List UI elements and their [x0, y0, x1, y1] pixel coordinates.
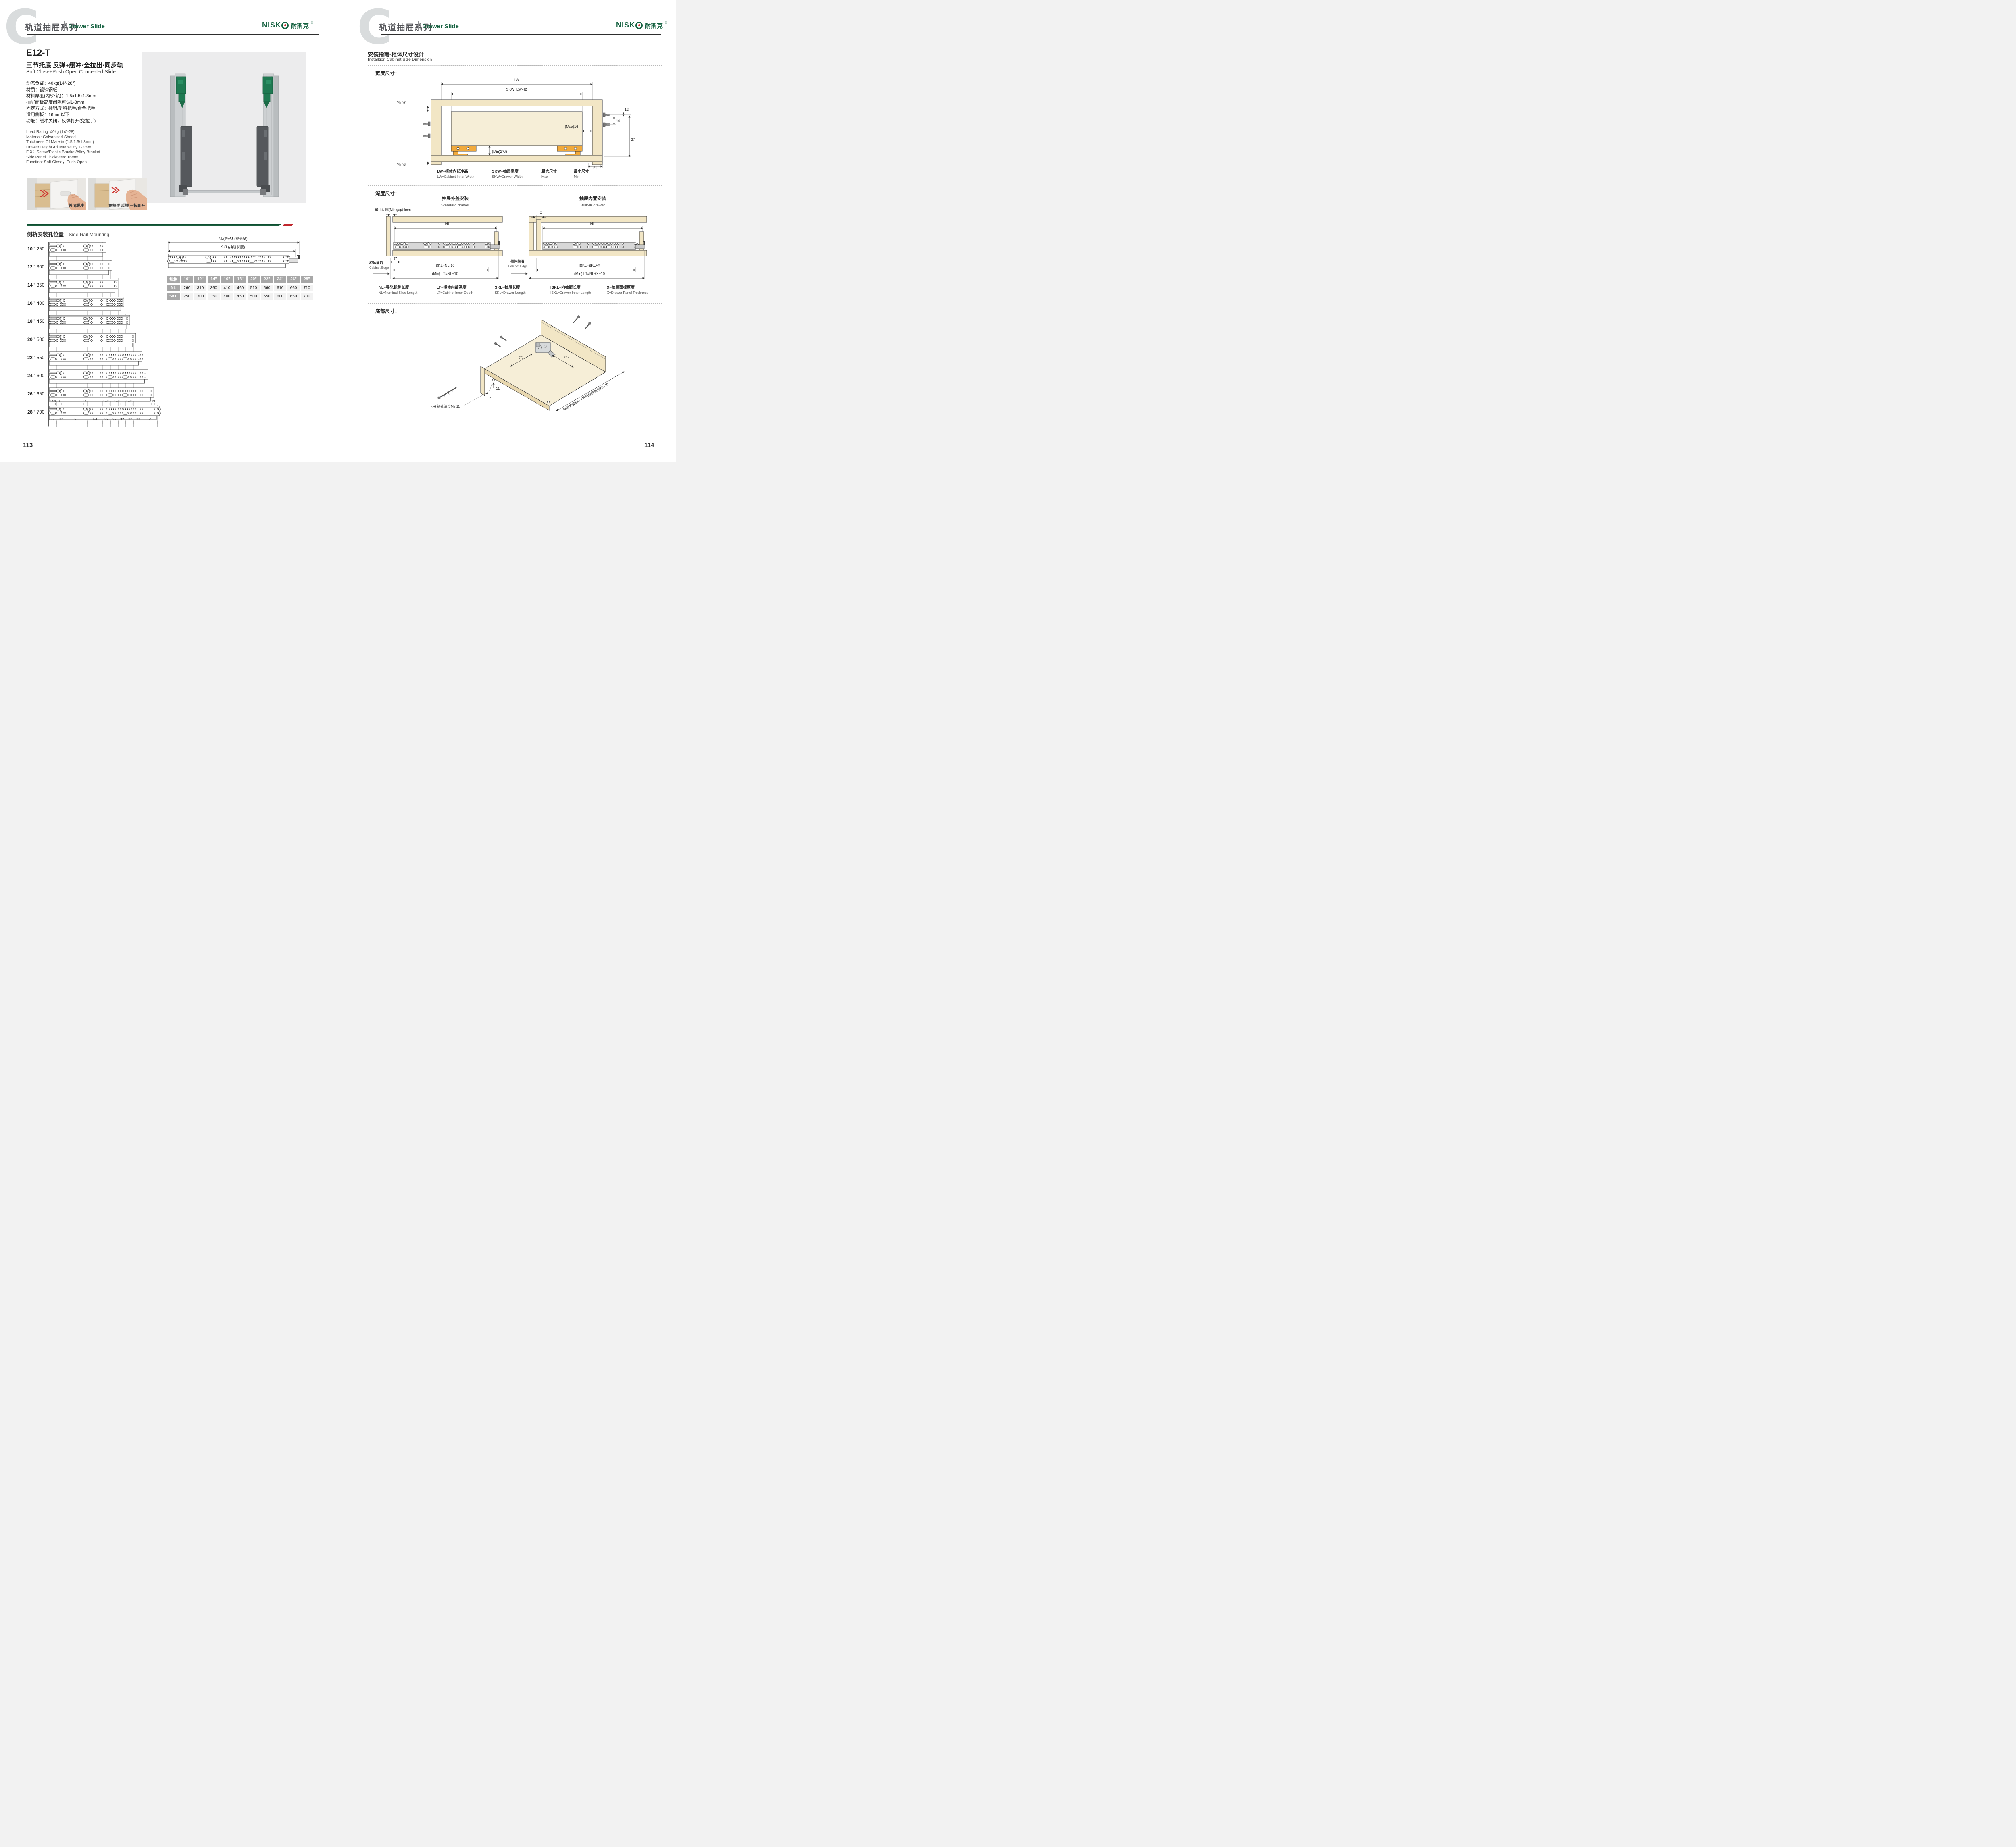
spec-line-en: Thickness Of Materia (1.5/1.5/1.8mm)	[26, 140, 100, 145]
table-value-cell: 360	[208, 285, 220, 291]
photo-soft-close: 关闭缓冲	[27, 178, 86, 210]
svg-text:Standard drawer: Standard drawer	[441, 203, 469, 208]
separator-red	[283, 224, 293, 226]
svg-text:7: 7	[489, 396, 491, 400]
rail-top-dim: 999	[50, 399, 56, 403]
svg-text:NL(导轨标称长度): NL(导轨标称长度)	[219, 236, 248, 241]
spec-line-cn: 适用侧板：16mm以下	[26, 112, 96, 119]
legend-item: LW=柜体内部净高LW=Cabinet Inner Width	[437, 168, 474, 179]
series-title-en: Drawer Slide	[422, 23, 459, 30]
rail-bottom-dim: 96	[74, 417, 78, 421]
catalog-spread: C 轨道抽屉系列 Drawer Slide NISK 耐斯克 ® E12-T 三…	[0, 0, 676, 462]
width-section: 宽度尺寸： LW SKW=LW-42 (Min)7 (Max)16	[368, 65, 662, 181]
photo-push-open: 免拉手 反弹 一按即开	[88, 178, 147, 210]
legend-item: LT=柜体内部深度LT=Cabinet Inner Depth	[437, 284, 473, 295]
rail-bottom-dim: 32	[104, 417, 108, 421]
rail-bottom-dim: 37	[50, 417, 54, 421]
rail-row-mm: 450	[37, 319, 44, 324]
rail-row-inch: 20"	[27, 337, 35, 342]
svg-text:85: 85	[564, 355, 569, 359]
spec-line-cn: 材料厚度(内/外轨)：1.5x1.5x1.8mm	[26, 93, 96, 100]
table-value-cell: 650	[287, 293, 300, 300]
brand-logo: NISK 耐斯克 ®	[616, 21, 667, 30]
table-value-cell: 510	[248, 285, 260, 291]
install-title-cn: 安装指南-柜体尺寸设计	[368, 50, 424, 58]
rail-drawing	[49, 388, 154, 401]
spec-line-en: Side Panel Thickness: 16mm	[26, 155, 100, 160]
table-value-cell: 300	[194, 293, 206, 300]
svg-text:柜体前沿: 柜体前沿	[510, 259, 525, 263]
rail-row-mm: 550	[37, 356, 44, 360]
svg-text:柜体前沿: 柜体前沿	[369, 261, 383, 265]
svg-text:LW: LW	[514, 78, 519, 82]
logo-o-icon	[635, 22, 643, 29]
rail-drawing	[49, 352, 143, 365]
legend-item: 最大尺寸Max	[541, 168, 557, 179]
rail-row-mm: 700	[37, 410, 44, 415]
separator-green	[27, 224, 281, 226]
svg-text:抽屉外盖安装: 抽屉外盖安装	[442, 196, 469, 201]
rail-drawing	[49, 297, 124, 311]
legend-item: NL=导轨标称长度NL=Nominal Slide Length	[379, 284, 418, 295]
rail-bottom-dim: 32	[59, 417, 63, 421]
rail-top-dim: 1499	[126, 399, 133, 403]
rail-row-inch: 14"	[27, 283, 35, 288]
spec-line-cn: 功能：缓冲关闭，反弹打开(免拉手)	[26, 118, 96, 125]
rail-drawing	[49, 333, 136, 347]
side-rail-title-en: Side Rail Mounting	[69, 232, 109, 237]
rail-bottom-dim: 64	[93, 417, 97, 421]
rail-row-mm: 600	[37, 374, 44, 379]
table-value-cell: 710	[301, 285, 313, 291]
table-value-cell: 700	[301, 293, 313, 300]
page-number-right: 114	[644, 442, 654, 449]
side-rail-title-cn: 侧轨安装孔位置	[27, 231, 64, 237]
rail-top-dim: 99	[84, 399, 87, 403]
width-label: 宽度尺寸：	[375, 70, 400, 77]
specs-cn: 动态负载：40kg(14"-28")材质：镀锌钢板材料厚度(内/外轨)：1.5x…	[26, 81, 96, 125]
svg-text:(Max)16: (Max)16	[565, 125, 578, 129]
legend-item: X=抽屉面板厚度X=Drawer Panel Thickness	[607, 284, 648, 295]
legend-item: SKL=抽屉长度SKL=Drawer Length	[495, 284, 526, 295]
table-value-cell: 460	[234, 285, 246, 291]
svg-text:(Min) LT=NL+10: (Min) LT=NL+10	[432, 272, 458, 276]
bottom-diagram: 75 85 11 7 Φ6 钻孔深度Min11 抽屉长度SKL=导轨标称长度NL…	[369, 314, 661, 422]
svg-text:ISKL=SKL+X: ISKL=SKL+X	[579, 264, 600, 268]
rail-bottom-dim: 32	[112, 417, 116, 421]
rail-row-inch: 16"	[27, 301, 35, 306]
rail-drawing	[49, 315, 130, 329]
rail-row-inch: 10"	[27, 247, 35, 252]
series-title-en: Drawer Slide	[68, 23, 105, 30]
svg-text:Cabinet Edge: Cabinet Edge	[369, 266, 389, 270]
svg-text:(Min)3: (Min)3	[395, 162, 406, 166]
spec-line-cn: 抽屉面板高度间隙可调1-3mm	[26, 100, 96, 106]
rail-row-mm: 300	[37, 265, 44, 270]
table-value-cell: 550	[261, 293, 273, 300]
table-value-cell: 560	[261, 285, 273, 291]
table-header-cell: 16"	[221, 276, 233, 283]
table-row-label: SKL	[167, 293, 180, 300]
table-header-cell: 规格	[167, 276, 180, 283]
length-diagram: NL(导轨标称长度) SKL(抽屉长度)	[167, 236, 306, 273]
legend-item: ISKL=内抽屉长度ISKL=Drawer Inner Length	[550, 284, 591, 295]
rail-top-dim: 99	[152, 399, 155, 403]
table-value-cell: 410	[221, 285, 233, 291]
rail-drawing	[49, 261, 112, 275]
table-value-cell: 600	[274, 293, 286, 300]
rail-top-dim: 32	[58, 399, 62, 403]
table-value-cell: 260	[181, 285, 193, 291]
rail-row-inch: 18"	[27, 319, 35, 324]
table-header-cell: 24"	[274, 276, 286, 283]
width-diagram: LW SKW=LW-42 (Min)7 (Max)16	[369, 76, 661, 170]
svg-text:(Min) LT=NL+X+10: (Min) LT=NL+X+10	[574, 272, 605, 276]
table-value-cell: 610	[274, 285, 286, 291]
side-rail-stack: 10"25012"30014"35016"40018"45020"50022"5…	[22, 239, 167, 431]
table-row-label: NL	[167, 285, 180, 291]
logo-cn: 耐斯克	[645, 21, 663, 30]
specs-en: Load Rating: 40kg (14"-28)Material: Galv…	[26, 130, 100, 165]
svg-text:Built-in drawer: Built-in drawer	[581, 203, 605, 208]
rail-top-dim: 1499	[114, 399, 121, 403]
spec-line-en: Material: Galvanized Sheed	[26, 135, 100, 140]
svg-text:12: 12	[625, 108, 629, 112]
svg-text:10: 10	[616, 119, 620, 123]
rail-bottom-dim: 32	[120, 417, 124, 421]
table-value-cell: 250	[181, 293, 193, 300]
rail-bottom-dim: 64	[148, 417, 152, 421]
rail-row-inch: 26"	[27, 392, 35, 397]
logo-reg: ®	[665, 21, 667, 25]
table-header-cell: 14"	[208, 276, 220, 283]
rail-row-mm: 500	[37, 337, 44, 342]
logo-o-icon	[281, 22, 289, 29]
depth-section: 深度尺寸： 抽屉外盖安装 Standard drawer 最小间隙(Min ga…	[368, 185, 662, 297]
depth-diagram: 抽屉外盖安装 Standard drawer 最小间隙(Min gap)4mm …	[369, 195, 661, 283]
product-photo	[142, 52, 306, 203]
rail-row-inch: 28"	[27, 410, 35, 415]
logo-reg: ®	[311, 21, 313, 25]
table-value-cell: 400	[221, 293, 233, 300]
table-header-cell: 28"	[301, 276, 313, 283]
bottom-section: 底部尺寸：	[368, 303, 662, 424]
page-number-left: 113	[23, 442, 33, 449]
header-rule-left	[27, 34, 319, 35]
svg-text:抽屉内置安装: 抽屉内置安装	[579, 196, 606, 201]
svg-text:NL: NL	[590, 222, 596, 226]
rail-drawing	[49, 243, 106, 256]
rail-row-mm: 650	[37, 392, 44, 397]
svg-text:Φ6 钻孔深度Min11: Φ6 钻孔深度Min11	[431, 404, 460, 408]
svg-text:75: 75	[519, 356, 523, 360]
header-rule-right	[381, 34, 661, 35]
svg-text:SKW=LW-42: SKW=LW-42	[506, 87, 527, 92]
title-divider	[418, 21, 419, 31]
table-value-cell: 350	[208, 293, 220, 300]
svg-text:37: 37	[394, 257, 397, 260]
rail-drawing	[49, 370, 148, 383]
product-subtitle-en: Soft Close+Push Open Concealed Slide	[26, 69, 116, 75]
side-rail-title: 侧轨安装孔位置 Side Rail Mounting	[27, 230, 109, 238]
rail-drawing	[49, 279, 118, 293]
rail-bottom-dim: 32	[128, 417, 132, 421]
spec-line-en: FIX：Screw/Plastic Bracket/Alloy Bracket	[26, 150, 100, 155]
spec-line-cn: 固定方式：插销/塑料把手/合金把手	[26, 106, 96, 112]
legend-item: 最小尺寸Min	[574, 168, 589, 179]
photo-caption: 关闭缓冲	[69, 202, 84, 208]
rail-row-inch: 24"	[27, 374, 35, 379]
title-divider	[64, 21, 65, 31]
logo-cn: 耐斯克	[291, 21, 309, 30]
svg-text:37: 37	[631, 137, 635, 141]
rail-row-mm: 400	[37, 301, 44, 306]
rail-row-mm: 250	[37, 247, 44, 252]
product-model: E12-T	[26, 48, 50, 58]
table-header-cell: 18"	[234, 276, 246, 283]
svg-text:(Min)27.5: (Min)27.5	[492, 150, 507, 154]
svg-text:Cabinet Edge: Cabinet Edge	[508, 264, 528, 268]
table-value-cell: 660	[287, 285, 300, 291]
table-value-cell: 310	[194, 285, 206, 291]
logo-text: NISK	[262, 21, 289, 29]
svg-text:最小间隙(Min gap)4mm: 最小间隙(Min gap)4mm	[375, 208, 411, 212]
table-header-cell: 20"	[248, 276, 260, 283]
rail-row-inch: 22"	[27, 356, 35, 360]
spec-line-cn: 动态负载：40kg(14"-28")	[26, 81, 96, 87]
svg-text:NL: NL	[445, 222, 450, 226]
spec-line-en: Drawer Height Adjustable By 1-3mm	[26, 145, 100, 150]
table-header-cell: 10"	[181, 276, 193, 283]
rail-bottom-dim: 32	[136, 417, 140, 421]
size-table: 规格10"12"14"16"18"20"22"24"26"28"NL260310…	[167, 276, 314, 302]
spec-line-en: Function: Soft Close，Push Open	[26, 160, 100, 165]
product-subtitle-cn: 三节托底 反弹+缓冲·全拉出·同步轨	[26, 60, 123, 69]
spec-line-en: Load Rating: 40kg (14"-28)	[26, 130, 100, 135]
table-header-cell: 22"	[261, 276, 273, 283]
brand-logo: NISK 耐斯克 ®	[262, 21, 313, 30]
svg-text:SKL(抽屉长度): SKL(抽屉长度)	[221, 245, 245, 249]
table-header-cell: 26"	[287, 276, 300, 283]
table-value-cell: 450	[234, 293, 246, 300]
svg-text:X: X	[540, 211, 542, 215]
svg-text:11: 11	[496, 387, 500, 391]
table-value-cell: 500	[248, 293, 260, 300]
photo-caption: 免拉手 反弹 一按即开	[108, 202, 145, 208]
bottom-label: 底部尺寸：	[375, 308, 400, 314]
svg-text:(Min)7: (Min)7	[395, 100, 406, 104]
spec-line-cn: 材质：镀锌钢板	[26, 87, 96, 94]
rail-top-dim: 1499	[103, 399, 110, 403]
svg-text:SKL=NL-10: SKL=NL-10	[436, 264, 455, 268]
legend-item: SKW=抽屉宽度SKW=Drawer Width	[492, 168, 523, 179]
table-header-cell: 12"	[194, 276, 206, 283]
rail-row-mm: 350	[37, 283, 44, 288]
install-title-en: Installtion Cabinet Size Dimension	[368, 57, 432, 62]
logo-text: NISK	[616, 21, 643, 29]
rail-row-inch: 12"	[27, 265, 35, 270]
